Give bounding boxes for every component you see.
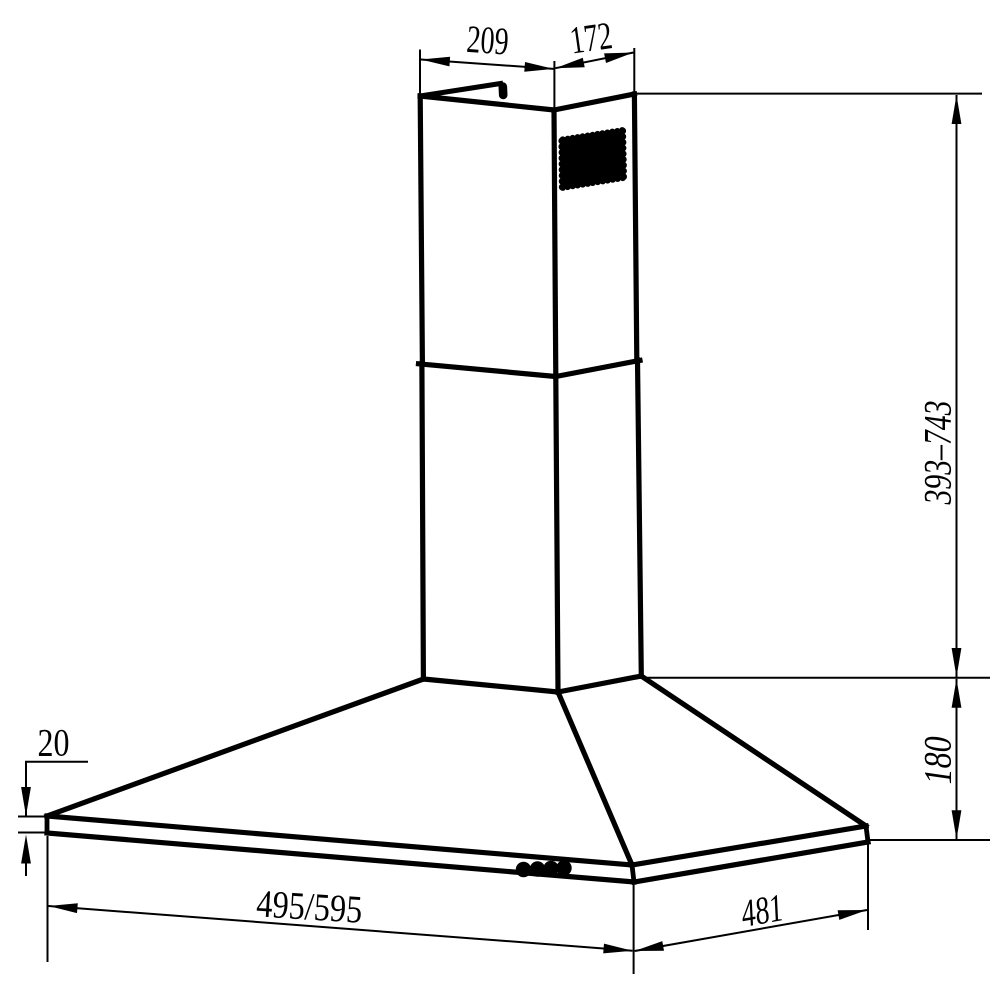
svg-text:495/595: 495/595 (255, 882, 363, 931)
svg-text:481: 481 (738, 886, 787, 936)
svg-text:393–743: 393–743 (917, 400, 960, 505)
svg-text:172: 172 (567, 14, 615, 62)
svg-text:180: 180 (917, 736, 960, 784)
svg-text:20: 20 (38, 721, 70, 764)
svg-text:209: 209 (465, 18, 510, 64)
